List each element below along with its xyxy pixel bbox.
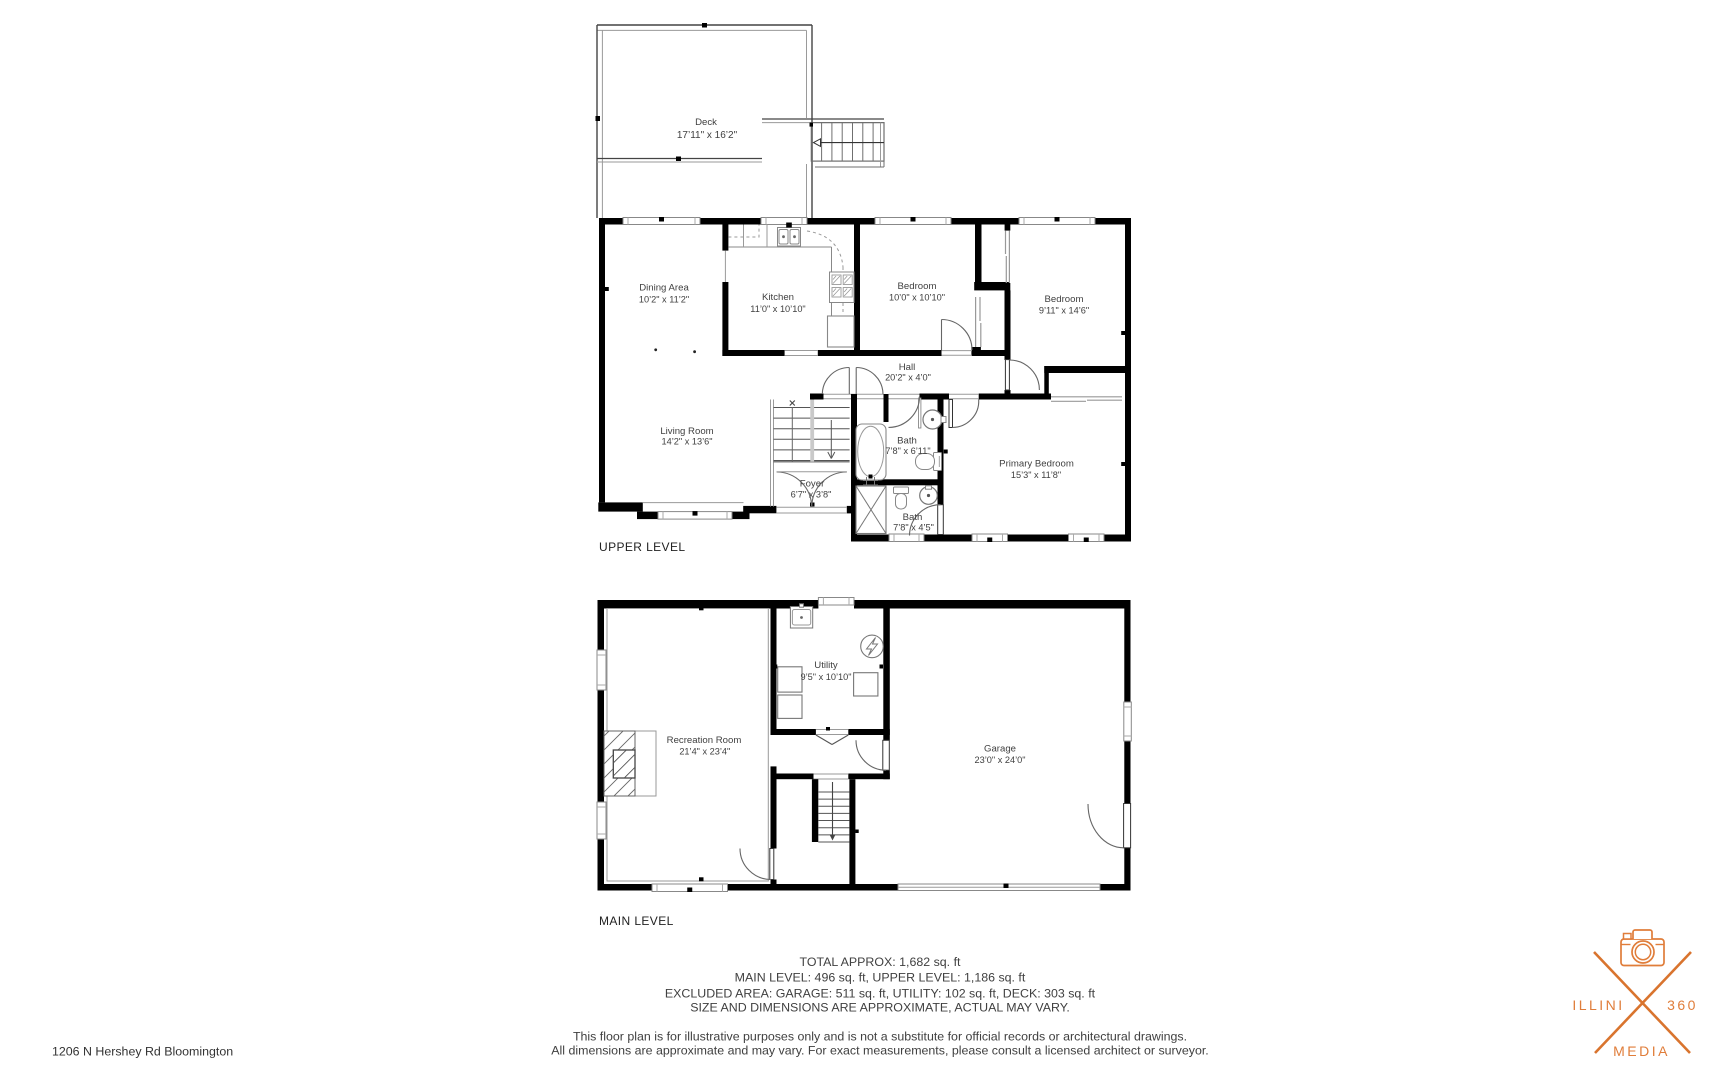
svg-text:Bath: Bath (897, 436, 917, 447)
svg-text:11’0" x 10’10": 11’0" x 10’10" (750, 304, 805, 314)
svg-text:14’2" x 13’6": 14’2" x 13’6" (662, 437, 713, 447)
svg-text:Utility: Utility (814, 660, 838, 671)
svg-text:Bedroom: Bedroom (1045, 294, 1084, 305)
svg-text:EXCLUDED AREA: GARAGE: 511 sq.: EXCLUDED AREA: GARAGE: 511 sq. ft, UTILI… (665, 986, 1096, 1000)
svg-text:Foyer: Foyer (800, 479, 825, 490)
svg-text:Garage: Garage (984, 744, 1016, 755)
svg-text:1206 N Hershey Rd Bloomington: 1206 N Hershey Rd Bloomington (52, 1045, 233, 1059)
svg-text:21’4" x 23’4": 21’4" x 23’4" (679, 746, 730, 756)
svg-text:360: 360 (1667, 997, 1698, 1013)
svg-text:17’11" x 16’2": 17’11" x 16’2" (677, 130, 738, 141)
svg-text:Living Room: Living Room (660, 426, 713, 437)
svg-text:Kitchen: Kitchen (762, 292, 794, 303)
svg-text:9’5" x 10’10": 9’5" x 10’10" (801, 672, 852, 682)
svg-text:7’8" x 6’11": 7’8" x 6’11" (885, 446, 930, 456)
svg-text:Primary Bedroom: Primary Bedroom (999, 459, 1074, 470)
svg-text:This floor plan is for illustr: This floor plan is for illustrative purp… (573, 1029, 1187, 1043)
svg-text:15’3" x 11’8": 15’3" x 11’8" (1011, 470, 1061, 480)
svg-text:Recreation Room: Recreation Room (667, 735, 742, 746)
svg-text:9’11" x 14’6": 9’11" x 14’6" (1039, 306, 1089, 316)
svg-text:7’8" x 4’5": 7’8" x 4’5" (893, 522, 934, 532)
svg-text:SIZE AND DIMENSIONS ARE APPROX: SIZE AND DIMENSIONS ARE APPROXIMATE, ACT… (690, 1000, 1070, 1014)
svg-text:10’0" x 10’10": 10’0" x 10’10" (889, 293, 945, 303)
svg-text:23’0" x 24’0": 23’0" x 24’0" (975, 755, 1026, 765)
svg-text:MEDIA: MEDIA (1613, 1043, 1670, 1059)
svg-text:Dining Area: Dining Area (639, 283, 689, 294)
svg-text:Deck: Deck (695, 117, 717, 128)
svg-text:ILLINI: ILLINI (1572, 997, 1624, 1013)
svg-text:6’7" x 3’8": 6’7" x 3’8" (791, 490, 832, 500)
svg-text:Bedroom: Bedroom (898, 281, 937, 292)
svg-text:10’2" x 11’2": 10’2" x 11’2" (639, 295, 689, 305)
svg-text:20’2" x 4’0": 20’2" x 4’0" (885, 372, 931, 382)
svg-text:UPPER LEVEL: UPPER LEVEL (599, 540, 685, 554)
svg-text:MAIN LEVEL: MAIN LEVEL (599, 914, 674, 928)
svg-text:All dimensions are approximate: All dimensions are approximate and may v… (551, 1044, 1208, 1058)
svg-text:MAIN LEVEL: 496 sq. ft, UPPER: MAIN LEVEL: 496 sq. ft, UPPER LEVEL: 1,1… (735, 971, 1026, 985)
svg-text:TOTAL APPROX: 1,682 sq. ft: TOTAL APPROX: 1,682 sq. ft (800, 955, 961, 969)
